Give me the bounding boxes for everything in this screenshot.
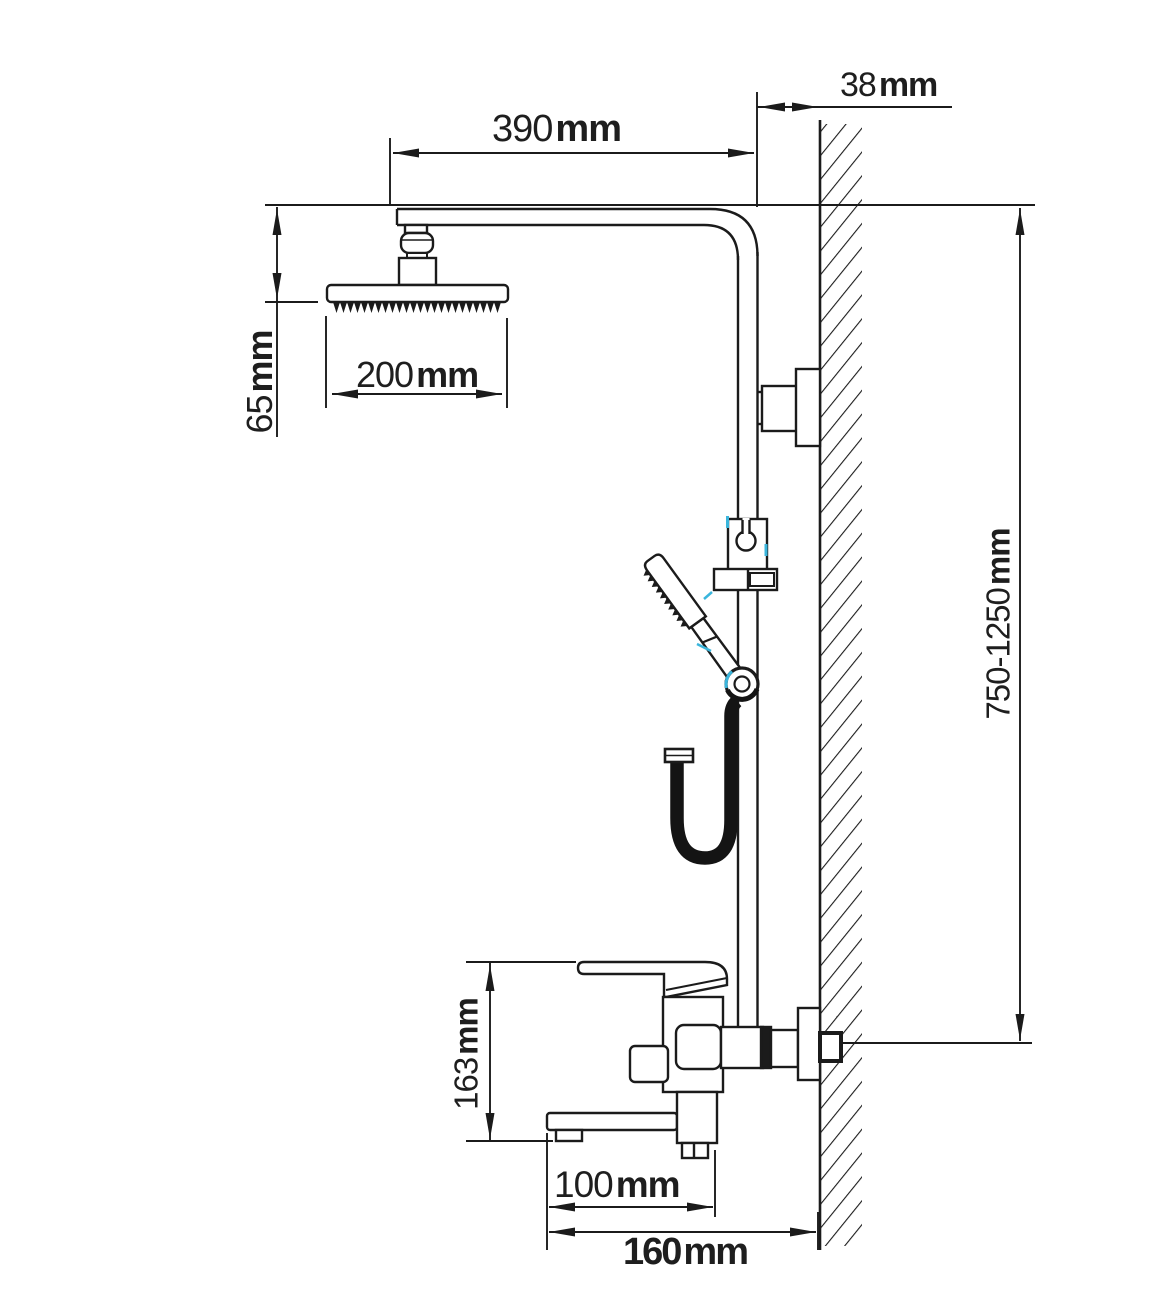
mixer-valve bbox=[578, 962, 841, 1092]
dim-value: 163 bbox=[448, 1058, 485, 1110]
dim-value: 38 bbox=[840, 66, 876, 104]
spout-end-tab bbox=[556, 1130, 582, 1141]
arrowhead bbox=[1016, 209, 1025, 235]
valve-connector bbox=[676, 1025, 721, 1069]
hose-tube bbox=[677, 701, 737, 858]
arrowhead bbox=[486, 965, 495, 991]
wall-flange bbox=[798, 1008, 820, 1080]
dim-mixer-height-label: 163mm bbox=[450, 998, 483, 1110]
arrowhead bbox=[273, 273, 282, 299]
wall-section bbox=[820, 120, 862, 1250]
keyhole-circle bbox=[737, 532, 756, 551]
arrowhead bbox=[393, 149, 419, 158]
spout-neck bbox=[677, 1092, 717, 1143]
arrowhead bbox=[549, 1228, 575, 1237]
arrowhead bbox=[687, 1203, 713, 1212]
head-spray-nozzles bbox=[333, 302, 501, 313]
head-plate bbox=[327, 285, 508, 302]
dim-value: 390 bbox=[492, 108, 552, 150]
wall-hatch bbox=[821, 124, 862, 1246]
arrowhead bbox=[790, 1228, 816, 1237]
dim-arm-reach-label: 390mm bbox=[492, 110, 621, 148]
shower-hose bbox=[665, 701, 737, 858]
dim-head-drop-label: 65mm bbox=[242, 330, 278, 433]
dim-unit: mm bbox=[239, 330, 280, 392]
ball-joint-nut bbox=[401, 233, 433, 253]
dim-wall-offset-label: 38mm bbox=[840, 68, 937, 102]
mixer-handle bbox=[578, 962, 727, 997]
swivel-connector-core bbox=[735, 677, 750, 692]
arrowhead bbox=[759, 103, 785, 112]
dim-riser-height-label: 750-1250mm bbox=[982, 528, 1015, 719]
riser-pipe bbox=[738, 252, 758, 1027]
dim-unit: mm bbox=[555, 108, 621, 150]
bracket-knob bbox=[762, 386, 797, 431]
accent-holder-bottom bbox=[704, 592, 712, 599]
bracket-wall-plate bbox=[796, 369, 820, 446]
dim-spout-reach-label: 100mm bbox=[554, 1166, 680, 1203]
dim-value: 750-1250 bbox=[980, 588, 1017, 719]
hand-shower-holder bbox=[714, 518, 777, 590]
arrowhead bbox=[792, 103, 818, 112]
dim-unit: mm bbox=[448, 998, 485, 1055]
arrowhead bbox=[728, 149, 754, 158]
mixer-spout bbox=[547, 1092, 717, 1158]
arrowhead bbox=[273, 209, 282, 235]
wall-mount-bracket bbox=[757, 369, 820, 446]
dim-unit: mm bbox=[416, 354, 478, 395]
dim-unit: mm bbox=[879, 66, 937, 104]
dim-value: 160 bbox=[623, 1231, 680, 1273]
dim-value: 200 bbox=[356, 354, 413, 395]
dim-head-width-label: 200mm bbox=[356, 357, 478, 393]
rain-shower-head bbox=[327, 225, 508, 313]
diverter-knob bbox=[630, 1046, 668, 1082]
dim-unit: mm bbox=[980, 528, 1017, 585]
hand-shower-head bbox=[643, 552, 706, 628]
dim-value: 100 bbox=[554, 1164, 613, 1205]
holder-bar-inner bbox=[750, 573, 774, 586]
shower-dimension-diagram: 38mm 390mm 65mm 200mm 750-1250mm 163mm 1… bbox=[0, 0, 1169, 1295]
dim-overall-reach-label: 160mm bbox=[623, 1233, 747, 1271]
arrowhead bbox=[476, 390, 502, 399]
arrowhead bbox=[486, 1113, 495, 1139]
dim-value: 65 bbox=[239, 395, 280, 433]
arrowhead bbox=[1016, 1014, 1025, 1040]
dim-unit: mm bbox=[616, 1164, 680, 1205]
union-seal-band bbox=[761, 1027, 771, 1068]
head-connector-block bbox=[399, 258, 436, 285]
spout-bar bbox=[547, 1113, 677, 1130]
eccentric-fitting bbox=[771, 1030, 798, 1067]
dim-unit: mm bbox=[683, 1231, 747, 1273]
in-wall-union bbox=[820, 1033, 841, 1061]
arrowhead bbox=[332, 390, 358, 399]
shower-arm bbox=[397, 209, 758, 260]
union-block bbox=[721, 1027, 763, 1068]
